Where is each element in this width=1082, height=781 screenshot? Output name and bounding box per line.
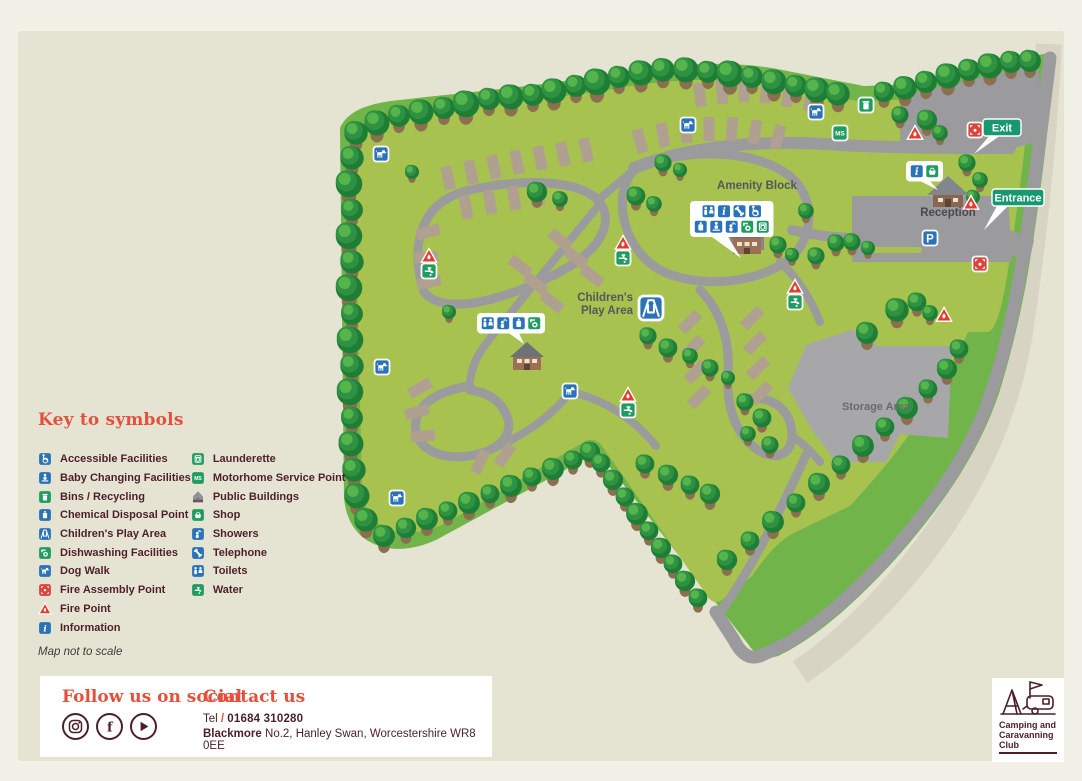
launderette-icon xyxy=(191,452,205,466)
legend-item-launderette: Launderette xyxy=(191,450,346,469)
tel-number: 01684 310280 xyxy=(227,713,303,725)
telephone-icon xyxy=(192,547,204,559)
tel-separator: / xyxy=(218,713,228,725)
public-buildings-icon xyxy=(193,491,203,502)
tent-icon xyxy=(1003,690,1021,714)
dog-walk-icon xyxy=(38,564,52,578)
tel-label: Tel xyxy=(203,713,218,725)
logo-text-line: Club xyxy=(999,740,1057,750)
legend: Key to symbols Accessible FacilitiesBaby… xyxy=(38,410,338,637)
mhs-icon: MS xyxy=(191,471,205,485)
legend-item-chemical: Chemical Disposal Point xyxy=(38,506,191,525)
legend-label: Telephone xyxy=(213,547,267,559)
legend-item-dog-walk: Dog Walk xyxy=(38,562,191,581)
legend-label: Information xyxy=(60,622,121,634)
showers-icon xyxy=(192,528,204,540)
telephone-line: Tel / 01684 310280 xyxy=(203,713,492,725)
legend-label: Shop xyxy=(213,509,241,521)
legend-label: Dishwashing Facilities xyxy=(60,547,178,559)
legend-label: Toilets xyxy=(213,565,248,577)
launderette-icon xyxy=(192,453,204,465)
accessible-icon xyxy=(38,452,52,466)
fire-point-icon xyxy=(39,603,51,614)
legend-item-telephone: Telephone xyxy=(191,543,346,562)
caravan-window xyxy=(1043,699,1049,704)
logo-rule xyxy=(999,752,1057,754)
legend-label: Chemical Disposal Point xyxy=(60,509,188,521)
contact-heading: Contact us xyxy=(203,687,492,707)
map-scale-note: Map not to scale xyxy=(38,646,122,658)
fire-point-icon xyxy=(38,602,52,616)
accessible-icon xyxy=(39,453,51,465)
legend-label: Accessible Facilities xyxy=(60,453,168,465)
chemical-icon xyxy=(38,508,52,522)
baby-changing-icon xyxy=(38,471,52,485)
legend-label: Showers xyxy=(213,528,259,540)
legend-item-information: iInformation xyxy=(38,618,191,637)
fire-assembly-icon xyxy=(38,583,52,597)
facebook-icon[interactable]: f xyxy=(96,713,123,740)
play-area-icon xyxy=(39,528,51,540)
legend-label: Children's Play Area xyxy=(60,528,166,540)
brochure-card xyxy=(18,31,1064,761)
legend-item-accessible: Accessible Facilities xyxy=(38,450,191,469)
information-icon: i xyxy=(39,622,51,634)
logo-text-line: Camping and xyxy=(999,720,1057,730)
information-icon: i xyxy=(38,621,52,635)
youtube-icon[interactable] xyxy=(130,713,157,740)
legend-label: Fire Assembly Point xyxy=(60,584,165,596)
dishwashing-icon xyxy=(39,547,51,559)
water-icon xyxy=(191,583,205,597)
chemical-icon xyxy=(39,510,51,522)
instagram-icon[interactable] xyxy=(62,713,89,740)
legend-item-baby-changing: Baby Changing Facilities xyxy=(38,469,191,488)
legend-label: Water xyxy=(213,584,243,596)
logo-text-line: Caravanning xyxy=(999,730,1057,740)
legend-item-play-area: Children's Play Area xyxy=(38,525,191,544)
dog-walk-icon xyxy=(39,566,51,578)
legend-item-water: Water xyxy=(191,581,346,600)
legend-item-shop: Shop xyxy=(191,506,346,525)
dishwashing-icon xyxy=(38,546,52,560)
logo-illustration xyxy=(997,678,1059,720)
legend-label: Motorhome Service Point xyxy=(213,472,346,484)
club-logo: Camping andCaravanningClub xyxy=(992,678,1064,762)
logo-text: Camping andCaravanningClub xyxy=(999,720,1057,750)
legend-column-1: Accessible FacilitiesBaby Changing Facil… xyxy=(38,450,191,637)
caravan-hitch xyxy=(1023,706,1027,709)
legend-item-toilets: Toilets xyxy=(191,562,346,581)
bins-icon xyxy=(39,491,51,503)
legend-item-fire-point: Fire Point xyxy=(38,600,191,619)
baby-changing-icon xyxy=(39,472,51,484)
address-line: Blackmore No.2, Hanley Swan, Worcestersh… xyxy=(203,728,492,752)
legend-label: Launderette xyxy=(213,453,276,465)
play-area-icon xyxy=(38,527,52,541)
contact-section: Contact us Tel / 01684 310280 Blackmore … xyxy=(203,687,492,752)
toilets-icon xyxy=(192,566,204,578)
legend-label: Public Buildings xyxy=(213,491,299,503)
legend-item-mhs: MSMotorhome Service Point xyxy=(191,469,346,488)
legend-item-bins: Bins / Recycling xyxy=(38,487,191,506)
mhs-icon: MS xyxy=(192,472,204,484)
bins-icon xyxy=(38,490,52,504)
showers-icon xyxy=(191,527,205,541)
legend-title: Key to symbols xyxy=(38,410,338,430)
fire-assembly-icon xyxy=(39,584,51,596)
legend-item-public-buildings: Public Buildings xyxy=(191,487,346,506)
legend-columns: Accessible FacilitiesBaby Changing Facil… xyxy=(38,450,338,637)
telephone-icon xyxy=(191,546,205,560)
svg-text:i: i xyxy=(43,624,46,634)
legend-item-fire-assembly: Fire Assembly Point xyxy=(38,581,191,600)
public-buildings-icon xyxy=(191,490,205,504)
legend-label: Dog Walk xyxy=(60,565,110,577)
legend-item-dishwashing: Dishwashing Facilities xyxy=(38,543,191,562)
site-name: Blackmore xyxy=(203,728,262,740)
legend-label: Bins / Recycling xyxy=(60,491,145,503)
flag xyxy=(1030,682,1042,689)
page: { "palette":{ "card":"#e5e4d3","band":"#… xyxy=(0,0,1082,781)
svg-text:MS: MS xyxy=(194,476,202,482)
footer: Follow us on social f Contact us Tel / 0… xyxy=(40,676,492,757)
toilets-icon xyxy=(191,564,205,578)
shop-icon xyxy=(192,510,204,522)
legend-label: Baby Changing Facilities xyxy=(60,472,191,484)
legend-item-showers: Showers xyxy=(191,525,346,544)
water-icon xyxy=(192,584,204,596)
shop-icon xyxy=(191,508,205,522)
legend-label: Fire Point xyxy=(60,603,111,615)
legend-column-2: LaunderetteMSMotorhome Service PointPubl… xyxy=(191,450,346,637)
svg-text:f: f xyxy=(107,721,114,734)
